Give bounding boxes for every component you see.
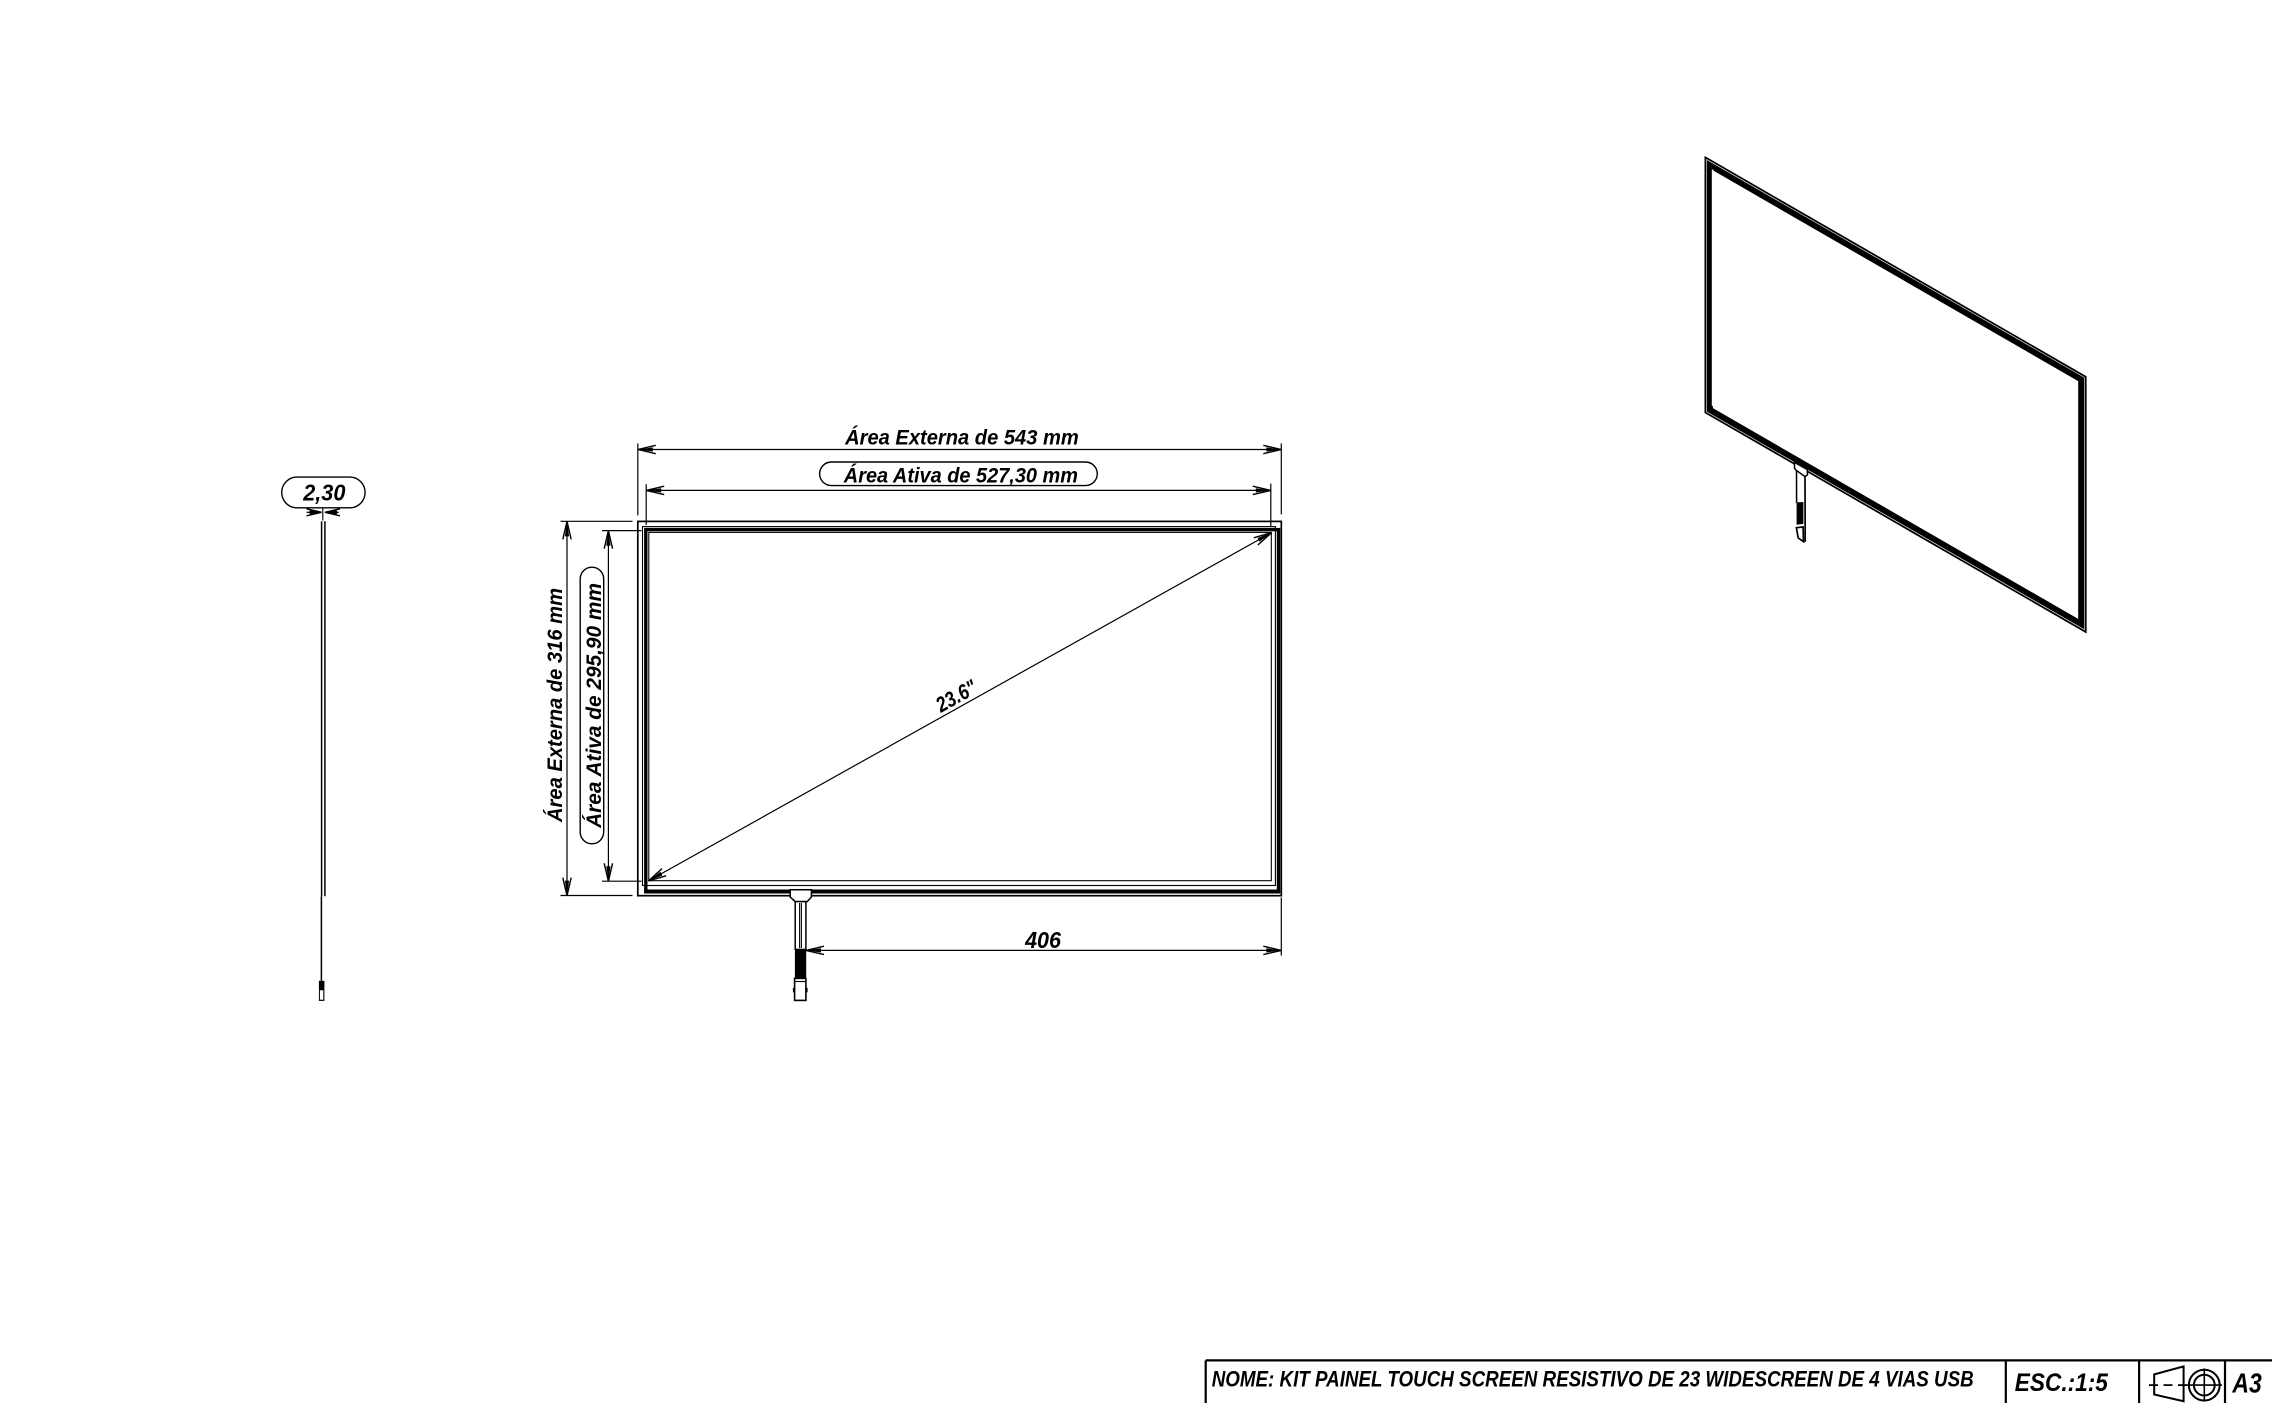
svg-text:406: 406 — [1024, 927, 1061, 953]
svg-text:NOME: KIT PAINEL TOUCH SCREEN: NOME: KIT PAINEL TOUCH SCREEN RESISTIVO … — [1212, 1367, 1974, 1392]
svg-text:23.6": 23.6" — [931, 675, 982, 718]
svg-text:ESC.:1:5: ESC.:1:5 — [2015, 1369, 2109, 1397]
svg-text:A3: A3 — [2232, 1367, 2262, 1398]
svg-text:Área Ativa de 527,30 mm: Área Ativa de 527,30 mm — [843, 464, 1078, 487]
svg-text:Área Externa de 543 mm: Área Externa de 543 mm — [844, 427, 1079, 450]
svg-text:Área Ativa de 295,90 mm: Área Ativa de 295,90 mm — [583, 583, 606, 829]
svg-text:Área Externa de 316 mm: Área Externa de 316 mm — [544, 588, 567, 823]
svg-text:2,30: 2,30 — [302, 480, 345, 506]
